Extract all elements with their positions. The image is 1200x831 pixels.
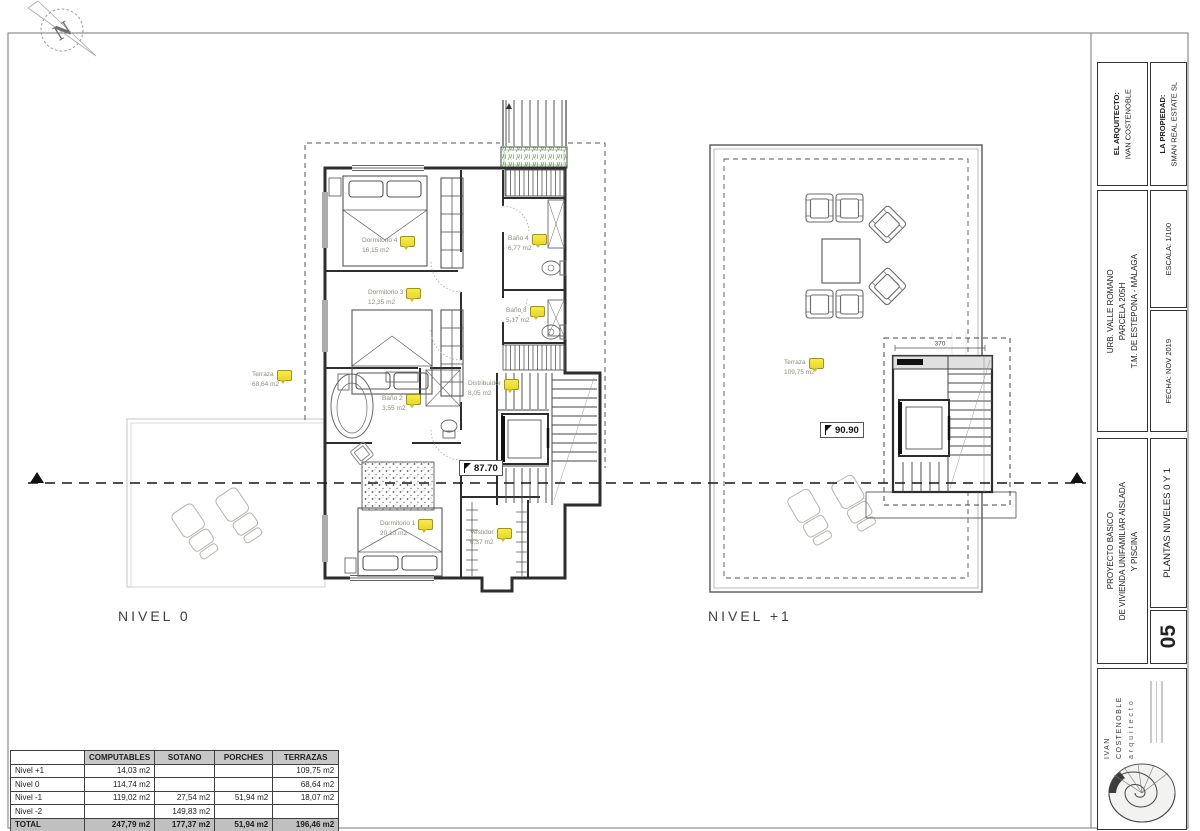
north-letter: N xyxy=(49,16,76,46)
exterior-stair xyxy=(503,100,566,146)
lounger xyxy=(214,486,265,546)
terrace-table xyxy=(822,239,860,283)
rug xyxy=(362,462,434,510)
room-label-terraza-nivel1: Terraza 109,75 m2 xyxy=(784,358,824,377)
note-tag-icon xyxy=(532,234,547,245)
room-label-distribuidor: Distribuidor 8,05 m2 xyxy=(468,379,519,398)
table-row: Nivel -2 149,83 m2 xyxy=(11,805,339,819)
room-label-dormitorio-1: Dormitorio 1 20,10 m2 xyxy=(380,519,433,538)
note-tag-icon xyxy=(530,306,545,317)
planter xyxy=(501,147,567,168)
table-total-row: TOTAL 247,79 m2 177,37 m2 51,94 m2 196,4… xyxy=(11,818,339,831)
table-header-row: COMPUTABLES SOTANO PORCHES TERRAZAS xyxy=(11,751,339,765)
areas-table: COMPUTABLES SOTANO PORCHES TERRAZAS Nive… xyxy=(10,750,339,831)
room-label-bano-2: Baño 2 3,55 m2 xyxy=(382,394,421,413)
level-marker-nivel0: 87.70 xyxy=(459,460,503,476)
titleblock-owner: LA PROPIEDAD: SMAN REAL ESTATE SL xyxy=(1150,62,1187,186)
nautilus-logo-icon xyxy=(1104,761,1180,825)
table-row: Nivel +1 14,03 m2 109,75 m2 xyxy=(11,764,339,778)
titleblock-date: FECHA: NOV 2019 xyxy=(1150,310,1187,432)
titleblock-sheet-title: PLANTAS NIVELES 0 Y 1 xyxy=(1150,438,1187,608)
svg-text:370: 370 xyxy=(935,341,946,348)
nivel0-title: NIVEL 0 xyxy=(118,608,191,624)
room-label-dormitorio-4: Dormitorio 4 16,15 m2 xyxy=(362,236,415,255)
level-flag-icon xyxy=(825,425,832,435)
titleblock-location: URB. VALLE ROMANO PARCELA 205H T.M. DE E… xyxy=(1097,190,1148,432)
titleblock-project: PROYECTO BÁSICO DE VIVIENDA UNIFAMILIAR … xyxy=(1097,438,1148,664)
level-marker-nivel1: 90.90 xyxy=(820,422,864,438)
titleblock-scale: ESCALA: 1/100 xyxy=(1150,190,1187,308)
level-flag-icon xyxy=(464,463,471,473)
table-row: Nivel 0 114,74 m2 68,64 m2 xyxy=(11,778,339,792)
note-tag-icon xyxy=(809,358,824,369)
plan-drawing: N xyxy=(0,0,1200,831)
note-tag-icon xyxy=(406,394,421,405)
section-marker-right xyxy=(1070,472,1084,483)
architect-logo-block: IVAN COSTENOBLE arquitecto xyxy=(1097,668,1187,830)
note-tag-icon xyxy=(400,236,415,247)
note-tag-icon xyxy=(504,379,519,390)
plan-nivel1: 370 xyxy=(710,145,1016,592)
room-label-bano-3: Baño 3 5,17 m2 xyxy=(506,306,545,325)
nivel1-title: NIVEL +1 xyxy=(708,608,792,624)
room-label-dormitorio-3: Dormitorio 3 12,35 m2 xyxy=(368,288,421,307)
room-label-vestidor: Vestidor 6,37 m2 xyxy=(470,528,512,547)
elevator xyxy=(899,400,949,456)
north-arrow-icon: N xyxy=(28,1,96,56)
drawing-sheet: N xyxy=(0,0,1200,831)
architect-logo-text: IVAN COSTENOBLE arquitecto xyxy=(1102,675,1138,759)
plan-nivel0 xyxy=(127,100,605,591)
table-row: Nivel -1 119,02 m2 27,54 m2 51,94 m2 18,… xyxy=(11,791,339,805)
hatch-strip xyxy=(503,345,565,370)
room-label-terraza-nivel0: Terraza 68,64 m2 xyxy=(252,370,292,389)
note-tag-icon xyxy=(406,288,421,299)
contact-info-lines xyxy=(1150,681,1163,743)
room-label-bano-4: Baño 4 6,77 m2 xyxy=(508,234,547,253)
elevator xyxy=(502,414,548,464)
note-tag-icon xyxy=(277,370,292,381)
note-tag-icon xyxy=(497,528,512,539)
titleblock-sheet-number: 05 xyxy=(1150,610,1187,664)
lounger xyxy=(170,502,221,562)
titleblock-architect: EL ARQUITECTO: IVAN COSTENOBLE xyxy=(1097,62,1148,186)
section-marker-left xyxy=(30,472,44,483)
hatch-strip xyxy=(505,170,565,196)
note-tag-icon xyxy=(418,519,433,530)
